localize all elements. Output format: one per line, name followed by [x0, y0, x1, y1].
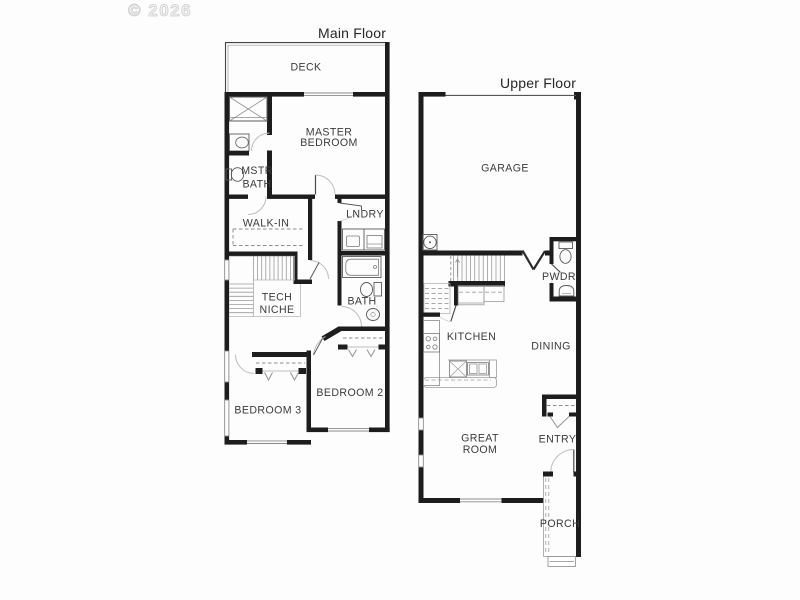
svg-text:KITCHEN: KITCHEN	[447, 331, 496, 343]
svg-text:NICHE: NICHE	[260, 304, 295, 316]
svg-text:© 2026: © 2026	[128, 1, 192, 20]
svg-text:PWDR: PWDR	[542, 271, 576, 283]
svg-text:ROOM: ROOM	[463, 444, 498, 456]
svg-text:Main Floor: Main Floor	[318, 25, 386, 41]
svg-text:MSTR: MSTR	[241, 165, 273, 177]
svg-text:ENTRY: ENTRY	[539, 434, 577, 446]
svg-text:BATH: BATH	[347, 296, 376, 308]
svg-text:GARAGE: GARAGE	[481, 163, 529, 175]
svg-text:DECK: DECK	[290, 62, 321, 74]
svg-text:WALK-IN: WALK-IN	[243, 218, 290, 230]
svg-text:GREAT: GREAT	[461, 433, 499, 445]
svg-text:BEDROOM 3: BEDROOM 3	[234, 405, 301, 417]
svg-text:Upper Floor: Upper Floor	[500, 75, 576, 91]
svg-text:TECH: TECH	[262, 292, 292, 304]
svg-text:PORCH: PORCH	[540, 518, 580, 530]
svg-text:BEDROOM: BEDROOM	[300, 137, 358, 149]
svg-text:BATH: BATH	[242, 179, 271, 191]
svg-text:DINING: DINING	[531, 341, 570, 353]
svg-text:BEDROOM 2: BEDROOM 2	[316, 387, 383, 399]
svg-text:LNDRY: LNDRY	[346, 209, 384, 221]
